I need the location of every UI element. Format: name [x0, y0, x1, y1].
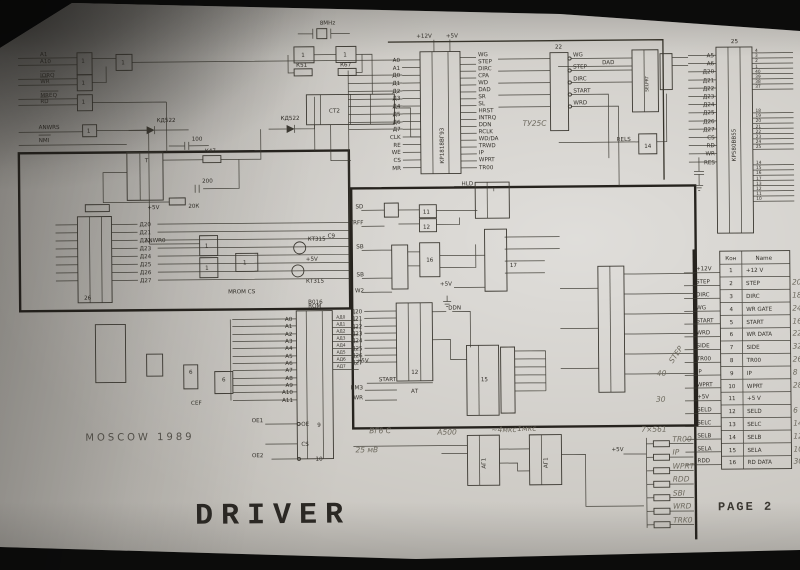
- conn-pin: 9: [730, 371, 734, 377]
- ppi-pin-number: 20: [756, 118, 762, 124]
- conn-name: STEP: [746, 281, 761, 287]
- fdc-pin: CLK: [390, 135, 401, 141]
- ppi-pin: WR: [705, 151, 715, 157]
- conn-name: +5 V: [747, 396, 761, 402]
- chip-designator: 26: [84, 296, 92, 302]
- inverter-label: 1: [301, 53, 305, 59]
- ppi-pin: Д24: [703, 102, 715, 108]
- fdc-pin: WPRT: [479, 157, 495, 163]
- conn-signal: RDD: [698, 458, 711, 464]
- ppi-pin: Д26: [703, 119, 715, 125]
- net-signal: TRK0: [673, 515, 693, 524]
- gate-designator: 11: [423, 210, 431, 216]
- diode-label: КД522: [281, 116, 300, 122]
- flipflop-label: T: [491, 187, 496, 193]
- ppi-pin: Д22: [703, 86, 715, 92]
- buffer-output: STEP: [573, 64, 588, 70]
- pencil-note: 1мкс: [517, 424, 537, 433]
- ppi-pin-number: 25: [756, 144, 762, 150]
- conn-cable-pin: 24: [792, 303, 800, 312]
- cpu-signal: RD: [40, 99, 48, 105]
- rom-addr: A5: [285, 354, 293, 360]
- conn-signal: +5V: [697, 394, 709, 400]
- counter-label: CT2: [329, 109, 340, 115]
- conn-name: SIDE: [747, 345, 761, 351]
- conn-signal: IP: [697, 369, 703, 375]
- fdc-pin: TRWD: [478, 143, 496, 149]
- signal-label: SB: [356, 272, 364, 278]
- gate-designator: 16: [426, 258, 434, 264]
- net-signal: IP: [672, 448, 679, 457]
- conn-cable-pin: 32: [793, 341, 800, 350]
- fdc-pin: TR00: [478, 165, 494, 171]
- ppi-pin-number: 37: [755, 84, 761, 90]
- net-signal: WRD: [673, 501, 692, 510]
- cpu-signal: WR: [40, 79, 50, 85]
- rom-pin: OE: [301, 422, 309, 428]
- ppi-pin-number: 16: [756, 170, 762, 176]
- conn-name: WR DATA: [746, 332, 772, 338]
- conn-signal: SELD: [697, 407, 712, 413]
- conn-pin: 8: [730, 358, 734, 364]
- conn-signal: SIDE: [697, 343, 711, 349]
- conn-pin: 14: [729, 435, 737, 441]
- photo-of-schematic: Кон Name 1+12 V+12V 2STEPSTEP20 3DIRCDIR…: [0, 0, 800, 570]
- wiring: [18, 25, 797, 534]
- conn-pin: 5: [730, 320, 734, 326]
- fdc-pin: IP: [479, 150, 485, 156]
- pencil-note: 30: [656, 395, 666, 404]
- rom-out: АД5: [337, 349, 346, 355]
- buffer-output: DIRC: [573, 76, 587, 82]
- signal-label: MROM CS: [228, 289, 256, 295]
- bus-label: Д24: [140, 254, 152, 260]
- buffer-output: START: [573, 88, 591, 94]
- fdc-pin: STEP: [478, 59, 493, 65]
- conn-name: WPRT: [747, 384, 763, 390]
- inverter-label: 1: [343, 52, 347, 58]
- resistor-network-label: 7×561: [641, 425, 666, 434]
- conn-pin: 6: [730, 332, 734, 338]
- conn-cable-pin: 12: [793, 431, 800, 440]
- pencil-note: 25 мВ: [355, 445, 378, 454]
- conn-signal: SELB: [697, 433, 711, 439]
- rom-addr: A6: [285, 361, 293, 367]
- conn-signal: TR00: [696, 356, 712, 362]
- fdc-pin: CPA: [478, 73, 489, 79]
- pencil-note: 40: [657, 369, 667, 378]
- ppi-pin: Д23: [703, 94, 715, 100]
- rom-out: АД3: [336, 335, 345, 341]
- sheet-title: DRIVER: [195, 498, 351, 533]
- gate-label: 1: [81, 81, 85, 87]
- ppi-pin: Д25: [703, 110, 715, 116]
- conn-name: IP: [747, 371, 753, 377]
- rom-addr: A3: [285, 339, 293, 345]
- conn-cable-pin: 20: [792, 277, 800, 286]
- fdc-part-number: КР1818ВГ93: [440, 127, 446, 163]
- resistor-label: К67: [340, 62, 352, 68]
- signal-label: CEF: [191, 401, 202, 407]
- schematic-drawing: Кон Name 1+12 V+12V 2STEPSTEP20 3DIRCDIR…: [0, 0, 800, 570]
- conn-pin: 3: [729, 294, 733, 300]
- rom-addr: A8: [285, 376, 293, 382]
- supply-label: +5V: [306, 257, 318, 263]
- conn-pin: 13: [729, 422, 737, 428]
- moscow-note: MOSCOW 1989: [85, 432, 194, 444]
- signal-label: АТ: [411, 389, 419, 395]
- bus-label: Д25: [140, 262, 152, 268]
- ppi-part-number: КР580ВВ55: [732, 128, 738, 161]
- conn-cable-pin: 18: [792, 290, 800, 299]
- cap-label: 100: [192, 137, 203, 143]
- flipflop-label: T: [144, 158, 149, 164]
- rom-out: АД1: [336, 321, 345, 327]
- rom-out: АД0: [336, 314, 345, 320]
- rom-out: АД2: [336, 328, 345, 334]
- fdc-pin: Д6: [393, 120, 401, 126]
- rom-addr: A2: [285, 332, 292, 338]
- signal-label: DDN: [448, 305, 461, 311]
- bus-label: Д27: [140, 278, 152, 284]
- conn-header-name: Name: [756, 256, 773, 262]
- gate-label: 6: [222, 378, 226, 384]
- fdc-pin: RCLK: [479, 129, 494, 135]
- rom-out: АД4: [336, 342, 345, 348]
- monostable-label: АГ1: [544, 457, 550, 468]
- conn-pin: 2: [729, 281, 733, 287]
- resistor-label: К47: [205, 149, 217, 155]
- signal-label: TRFF: [349, 220, 364, 226]
- pencil-note: А500: [436, 428, 457, 437]
- fdc-pin: A1: [393, 66, 401, 72]
- chip-designator: 17: [510, 263, 518, 269]
- crystal-freq: 8MHz: [320, 21, 336, 27]
- signal-label: WR: [354, 395, 364, 401]
- conn-signal: WRD: [696, 330, 710, 336]
- signal-label: SD: [355, 204, 363, 210]
- conn-pin: 7: [730, 345, 734, 351]
- conn-cable-pin: 16: [792, 316, 800, 325]
- conn-name: SELD: [747, 409, 762, 415]
- fdc-pin: A0: [393, 58, 401, 64]
- conn-pin: 11: [728, 396, 736, 402]
- conn-pin: 4: [729, 307, 733, 313]
- conn-cable-pin: 10: [793, 444, 800, 453]
- ppi-pin: Д20: [703, 69, 715, 75]
- conn-pin: 16: [729, 460, 737, 466]
- connector-table: Кон Name 1+12 V+12V 2STEPSTEP20 3DIRCDIR…: [695, 250, 800, 469]
- fdc-pin: Д1: [392, 81, 400, 87]
- gate-label: 1: [121, 60, 125, 66]
- conn-signal: STEP: [696, 279, 711, 285]
- bus-label: Д20: [351, 309, 363, 315]
- conn-pin: 15: [729, 448, 737, 454]
- conn-pin: 1: [729, 268, 733, 274]
- conn-name: TR00: [746, 358, 762, 364]
- bus-label: Д26: [140, 270, 152, 276]
- net-signal: RDD: [673, 474, 690, 483]
- cap-label: C9: [328, 234, 336, 240]
- supply-label: +5V: [611, 447, 623, 453]
- fdc-pin: Д3: [392, 96, 400, 102]
- cpu-signal: ANWRS: [39, 125, 60, 131]
- rom-addr: A7: [285, 368, 293, 374]
- fdc-pin: INTRQ: [479, 115, 497, 121]
- chip-designator: 25: [731, 39, 739, 45]
- pencil-note: ВГ6 С: [369, 426, 392, 435]
- conn-signal: DIRC: [696, 292, 710, 298]
- chip-part-number: SELPRT: [644, 76, 650, 92]
- bus-label: Д25: [351, 346, 363, 352]
- fdc-pin: DDN: [479, 122, 492, 128]
- signal-label: RELS: [617, 137, 632, 143]
- conn-pin: 10: [728, 384, 736, 390]
- conn-signal: WPRT: [697, 382, 713, 388]
- conn-signal: +12V: [696, 266, 712, 272]
- chip-designator: 10: [315, 457, 323, 463]
- conn-name: SELC: [747, 422, 761, 428]
- gate-label: 1: [87, 129, 91, 135]
- pencil-note: ~4мкс: [491, 425, 517, 434]
- chip-designator: 15: [481, 377, 489, 383]
- supply-label: +5V: [357, 358, 369, 364]
- fdc-pin: DAD: [478, 87, 490, 93]
- rom-pin: ОЕ1: [252, 418, 264, 424]
- chip-designator: 9: [317, 423, 321, 429]
- resistor-label: 20К: [188, 204, 199, 210]
- bus-label: Д23: [351, 331, 363, 337]
- fdc-pin: CS: [393, 158, 401, 164]
- buffer-output: WG: [573, 52, 583, 58]
- supply-label: +5V: [147, 205, 159, 211]
- fdc-pin: WD: [478, 80, 488, 86]
- signal-label: DAD: [602, 60, 614, 66]
- ppi-pin-number: 10: [756, 196, 762, 202]
- rom-out: АД7: [337, 363, 346, 369]
- gate-label: 1: [205, 244, 209, 250]
- fdc-pin: WE: [392, 150, 402, 156]
- fdc-pin: Д7: [393, 127, 401, 133]
- ppi-pin: Д27: [703, 127, 715, 133]
- gate-label: 6: [189, 370, 193, 376]
- ppi-pin: CS: [707, 135, 715, 141]
- gate-label: 1: [81, 59, 85, 65]
- transistor-label: КТ315: [306, 279, 325, 285]
- conn-cable-pin: 8: [793, 368, 798, 377]
- gate-designator: 12: [423, 225, 430, 231]
- cpu-signal: A10: [40, 59, 51, 65]
- signal-label: SB: [356, 244, 364, 250]
- fdc-pin: RE: [393, 143, 401, 149]
- signal-label: ANWR0: [145, 238, 166, 244]
- page-number: PAGE 2: [718, 500, 773, 514]
- rom-addr: A4: [285, 346, 293, 352]
- signal-label: ВМЗ: [351, 385, 364, 391]
- conn-header-pin: Кон: [725, 256, 736, 262]
- conn-cable-pin: 22: [792, 328, 800, 337]
- supply-label: +5V: [440, 282, 452, 288]
- conn-name: DIRC: [746, 294, 760, 300]
- pencil-note: ТУ25С: [523, 119, 548, 128]
- net-signal: TR00: [672, 434, 692, 443]
- diode-label: КД522: [157, 118, 176, 124]
- rom-title: ROM: [308, 304, 321, 310]
- signal-label: HLD: [461, 181, 473, 187]
- conn-signal: WG: [696, 305, 706, 311]
- conn-cable-pin: 6: [793, 406, 798, 415]
- bus-label: Д21: [140, 230, 152, 236]
- conn-name: SELA: [747, 448, 761, 454]
- conn-name: SELB: [747, 435, 761, 441]
- transistor-label: КТ315: [308, 237, 327, 243]
- fdc-pin: SR: [478, 94, 486, 100]
- fdc-pin: WD/DA: [479, 136, 499, 142]
- net-signal: WPRT: [673, 461, 696, 470]
- chip-designator: 22: [555, 45, 562, 51]
- rom-addr: A11: [282, 398, 293, 404]
- conn-name: RD DATA: [748, 460, 773, 466]
- conn-signal: SELC: [697, 420, 711, 426]
- fdc-pin: Д0: [392, 73, 400, 79]
- ppi-pin: Д21: [703, 78, 715, 84]
- gate-designator: 14: [644, 144, 652, 150]
- rom-pin: CS: [301, 442, 309, 448]
- rom-addr: A0: [285, 317, 293, 323]
- net-signal: SBI: [673, 489, 686, 498]
- conn-pin: 12: [729, 409, 736, 415]
- supply-label: +12V: [416, 34, 432, 40]
- cap-label: 200: [202, 179, 213, 185]
- signal-label: W2: [355, 288, 364, 294]
- ppi-pin: A5: [707, 53, 715, 59]
- conn-cable-pin: 26: [793, 354, 800, 363]
- bus-label: Д20: [139, 222, 151, 228]
- conn-signal: START: [696, 318, 714, 324]
- rom-pin: ОЕ2: [252, 453, 264, 459]
- fdc-pin: HRST: [478, 108, 494, 114]
- buffer-output: WRD: [573, 100, 587, 106]
- fdc-pin: WG: [478, 52, 488, 58]
- supply-label: +5V: [446, 33, 458, 39]
- cpu-signal: A1: [40, 52, 48, 58]
- rom-addr: A1: [285, 324, 293, 330]
- rom-addr: A10: [282, 390, 293, 396]
- ppi-pin: A6: [707, 61, 715, 67]
- conn-name: +12 V: [746, 268, 764, 274]
- conn-signal: SELA: [697, 446, 711, 452]
- conn-name: START: [746, 320, 764, 326]
- ppi-pin-number: 2: [755, 58, 758, 64]
- cpu-signal: NMI: [39, 138, 50, 144]
- rom-addr: A9: [285, 383, 293, 389]
- pencil-note: STEP: [667, 344, 685, 365]
- fdc-pin: Д2: [392, 89, 400, 95]
- bus-label: Д22: [351, 324, 363, 330]
- signal-label: START: [379, 377, 397, 383]
- ppi-pin: RD: [707, 143, 715, 149]
- fdc-pin: MR: [392, 166, 401, 172]
- ppi-pin: RES: [704, 160, 715, 166]
- rom-out: АД6: [337, 356, 346, 362]
- gate-label: 1: [205, 266, 209, 272]
- conn-name: WR GATE: [746, 307, 772, 313]
- fdc-pin: Д4: [392, 104, 400, 110]
- resistor-label: К51: [296, 63, 308, 69]
- fdc-pin: SL: [478, 101, 486, 107]
- bus-label: Д21: [351, 316, 363, 322]
- monostable-label: АГ1: [482, 457, 488, 468]
- conn-cable-pin: 14: [793, 418, 800, 427]
- conn-cable-pin: 28: [793, 380, 800, 389]
- chip-designator: 12: [411, 370, 418, 376]
- component-bodies: [76, 25, 756, 533]
- bus-label: Д23: [140, 246, 152, 252]
- gate-label: 1: [243, 260, 247, 266]
- fdc-pin: Д5: [393, 112, 401, 118]
- bus-label: Д24: [351, 338, 363, 344]
- conn-cable-pin: 30: [794, 456, 800, 465]
- gate-label: 1: [82, 100, 86, 106]
- fdc-pin: DIRC: [478, 66, 492, 72]
